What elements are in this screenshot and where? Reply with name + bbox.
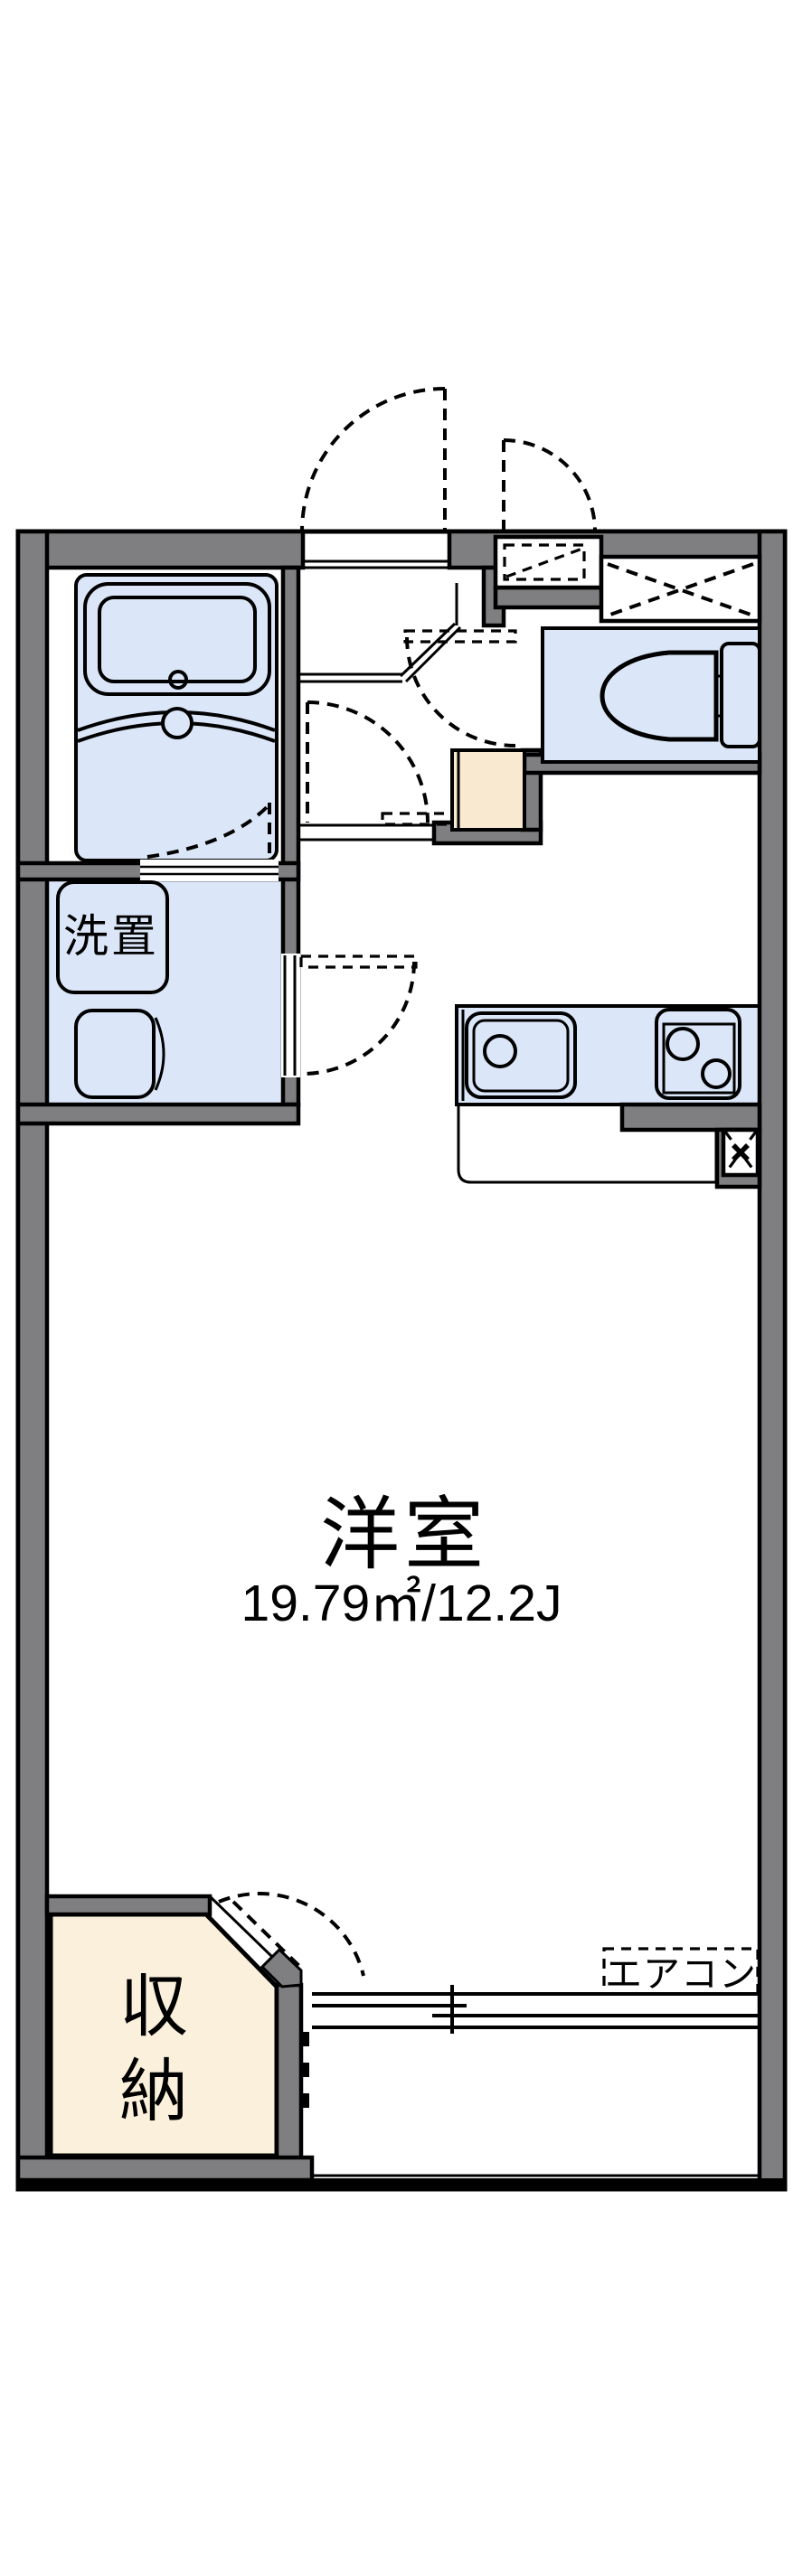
washroom-door-gap: [281, 954, 300, 1077]
bathroom: [76, 575, 277, 860]
pipe-shaft: [723, 1130, 758, 1175]
toilet-upper-cabinet: [601, 557, 760, 621]
floor-plan-page: 洗置: [0, 0, 812, 2576]
room-area-label: 19.79㎡/12.2J: [241, 1575, 562, 1632]
kitchen-right-wall-band: [622, 1105, 760, 1130]
closet-track-tick-2: [301, 2063, 309, 2077]
closet-track-tick-1: [301, 2032, 309, 2046]
bathroom-door-gap: [140, 860, 279, 881]
left-wall: [18, 531, 47, 2189]
aircon-label: エアコン: [605, 1953, 757, 1995]
bath-faucet: [163, 709, 192, 738]
toilet-floor: [543, 628, 760, 762]
closet-right-wall: [277, 1985, 301, 2180]
floor-plan: 洗置: [0, 0, 812, 2576]
plan-bottom-edge: [18, 2178, 785, 2189]
shoe-cabinet: [452, 750, 524, 830]
closet-track-tick-3: [301, 2093, 309, 2108]
washer-label: 洗置: [63, 911, 159, 962]
entrance-door-arc: [302, 389, 445, 531]
closet-label-char-1: 収: [119, 1969, 188, 2045]
washroom-bottom-wall: [18, 1105, 298, 1123]
closet-label-char-2: 納: [119, 2054, 188, 2130]
toilet-room: [543, 628, 760, 762]
meter-box-door-arc: [504, 440, 595, 531]
top-wall-left: [18, 531, 303, 568]
entry-block: [452, 750, 524, 830]
closet-top-wall: [47, 1896, 210, 1914]
right-wall: [760, 531, 785, 2189]
meter-box: [496, 537, 601, 588]
entry-niche-bottom-stub: [496, 588, 604, 607]
aircon: エアコン: [604, 1949, 758, 1995]
room-label: 洋室: [320, 1490, 488, 1579]
closet-bottom-wall: [18, 2158, 312, 2180]
